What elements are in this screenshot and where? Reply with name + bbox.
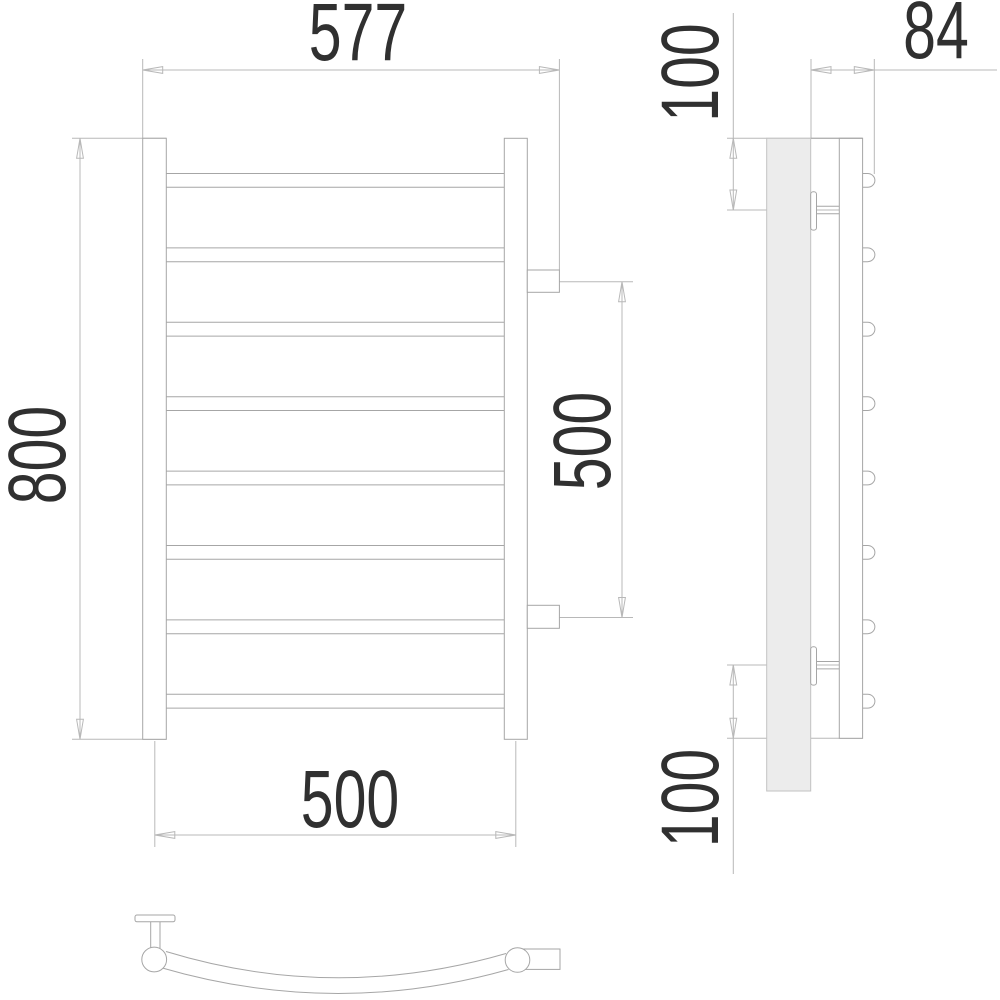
technical-drawing-page: 577 800 500 500 84	[0, 0, 1000, 1000]
dim-pipe-spacing: 500	[155, 741, 516, 847]
bracket-flange	[811, 647, 817, 685]
dim-connection-spacing: 500	[537, 282, 633, 618]
dim-top-bracket-offset: 100	[645, 13, 863, 210]
dim-label-bottom-bracket-offset: 100	[645, 749, 737, 848]
right-pipe-section	[505, 948, 530, 973]
bottom-side-connection	[527, 605, 559, 628]
bowed-rung-back-edge	[161, 968, 509, 994]
dim-bottom-bracket-offset: 100	[645, 665, 863, 874]
wall-strip	[767, 138, 811, 791]
vertical-pipe-profile	[839, 138, 862, 738]
dim-height: 800	[0, 138, 167, 739]
top-side-connection	[527, 270, 559, 292]
bottom-wall-bracket	[811, 647, 840, 685]
dim-label-pipe-spacing: 500	[301, 754, 400, 846]
rung-bow-profile	[863, 546, 875, 560]
rung-bow-profile	[863, 620, 875, 634]
dim-label-connection-spacing: 500	[537, 392, 629, 491]
rung-bow-profile	[863, 248, 875, 262]
dim-label-height: 800	[0, 406, 83, 505]
rung-bow-profile	[863, 322, 875, 336]
front-view	[143, 138, 560, 739]
rung-bow-profile	[863, 694, 875, 708]
rung-bow-profile	[863, 174, 875, 188]
left-vertical-pipe	[143, 138, 167, 739]
left-pipe-section	[142, 947, 167, 972]
towel-rail-drawing: 577 800 500 500 84	[0, 0, 1000, 1000]
rung-bow-profile	[863, 471, 875, 485]
plan-view	[135, 915, 560, 994]
side-view	[767, 138, 875, 791]
dim-label-top-bracket-offset: 100	[645, 23, 737, 122]
bracket-flange-top-view	[135, 915, 175, 922]
rung-group	[166, 174, 504, 709]
dim-label-overall-width: 577	[309, 0, 408, 78]
dim-label-depth: 84	[903, 0, 969, 76]
rung-bow-profiles	[863, 174, 875, 709]
dim-overall-width: 577	[143, 0, 560, 270]
bowed-rung-front-edge	[166, 952, 506, 978]
rung-bow-profile	[863, 397, 875, 411]
top-wall-bracket	[811, 192, 840, 230]
bracket-flange	[811, 192, 817, 230]
right-vertical-pipe	[504, 138, 527, 739]
